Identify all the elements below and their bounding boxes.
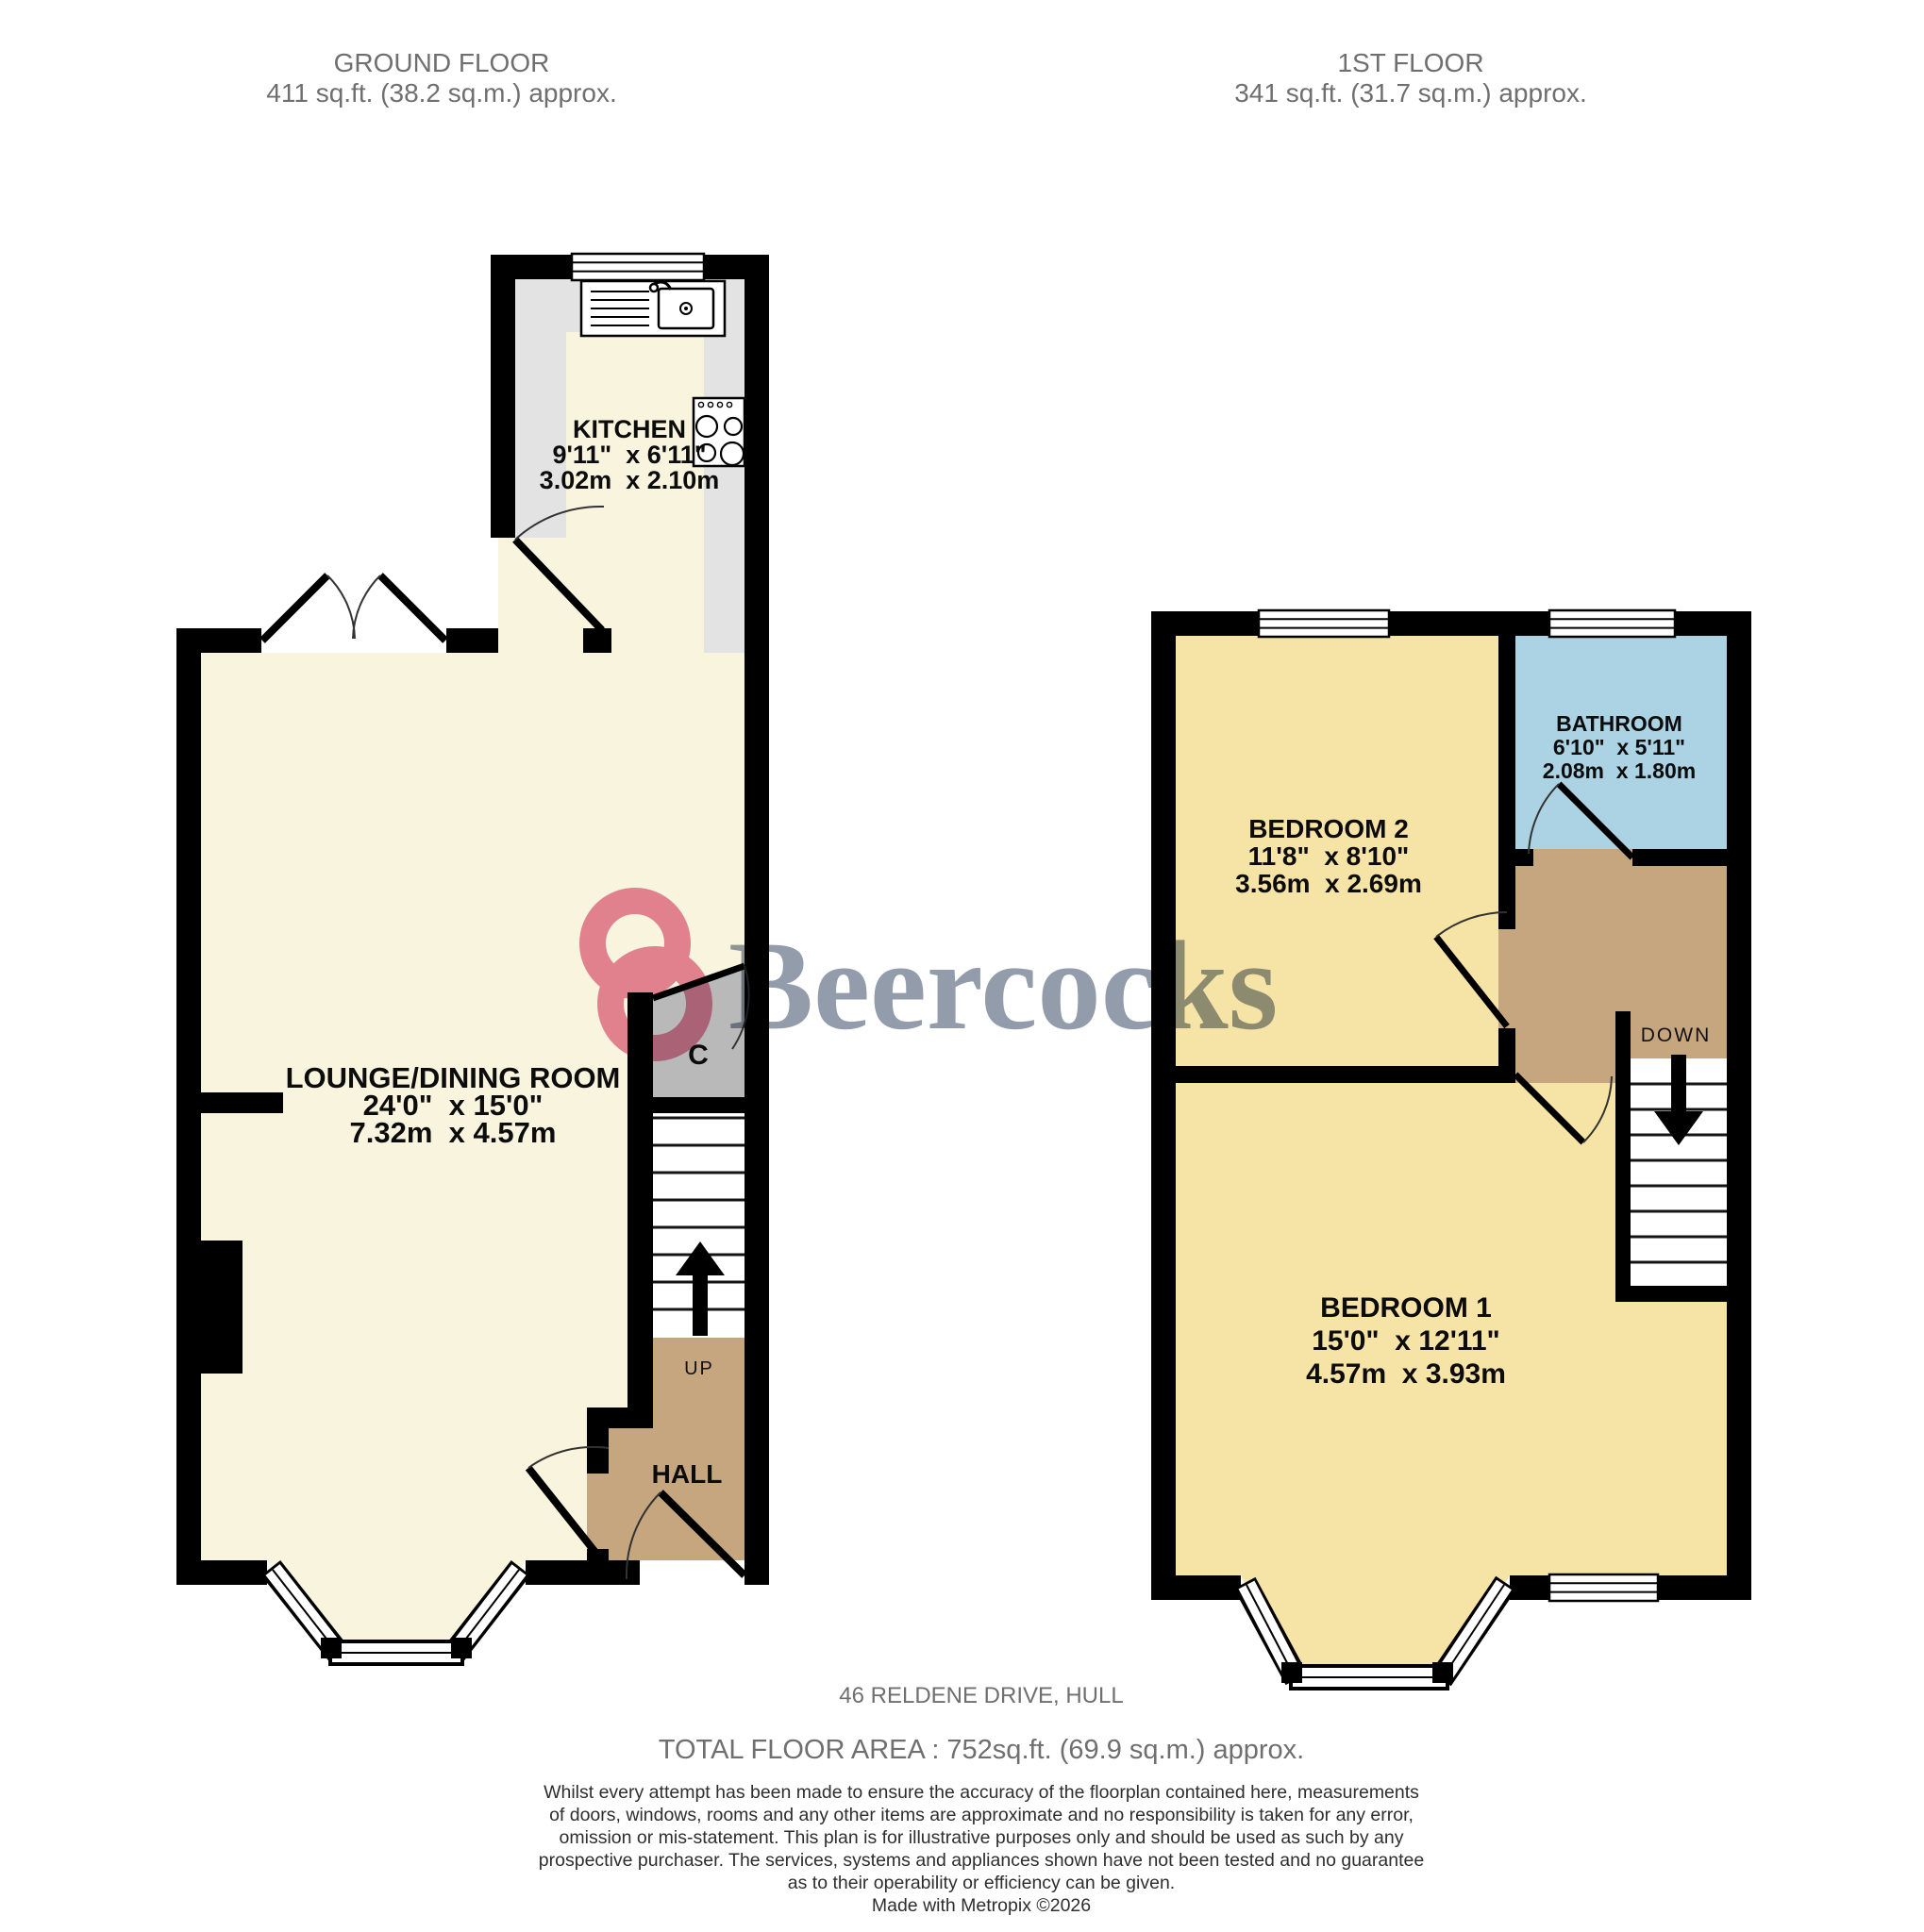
disclaimer-line: omission or mis-statement. This plan is … <box>560 1827 1404 1848</box>
bedroom1-label: BEDROOM 1 <box>1320 1292 1492 1324</box>
lounge-dims-metric: 7.32m x 4.57m <box>350 1116 557 1149</box>
bedroom2-dims-imperial: 11'8" x 8'10" <box>1248 841 1410 871</box>
kitchen-dims-metric: 3.02m x 2.10m <box>540 466 720 494</box>
wall <box>176 628 201 1585</box>
bedroom2-doorway-floor <box>1498 929 1515 1028</box>
wall <box>1727 611 1751 1600</box>
stairs-up-label: UP <box>684 1358 714 1379</box>
bedroom1-dims-metric: 4.57m x 3.93m <box>1306 1358 1506 1390</box>
wall <box>583 628 611 653</box>
kitchen-doorway-floor <box>498 628 583 653</box>
kitchen-label: KITCHEN <box>573 415 686 443</box>
french-doors <box>262 575 445 641</box>
address: 46 RELDENE DRIVE, HULL <box>839 1683 1123 1708</box>
wall-stub <box>201 1092 283 1113</box>
footer: 46 RELDENE DRIVE, HULL TOTAL FLOOR AREA … <box>539 1683 1424 1916</box>
watermark-brand: Beercocks <box>728 916 1278 1057</box>
ground-floor-title: GROUND FLOOR <box>334 48 550 77</box>
bathroom-label: BATHROOM <box>1556 711 1682 736</box>
window <box>1549 1574 1658 1601</box>
window <box>1259 610 1389 637</box>
kitchen-dims-imperial: 9'11" x 6'11" <box>552 441 706 469</box>
metropix-credit: Made with Metropix ©2026 <box>872 1895 1091 1916</box>
first-floor-area: 341 sq.ft. (31.7 sq.m.) approx. <box>1234 78 1587 108</box>
chimney-breast <box>201 1241 243 1374</box>
wall <box>491 255 515 538</box>
disclaimer-line: prospective purchaser. The services, sys… <box>539 1850 1424 1871</box>
ground-floor-area: 411 sq.ft. (38.2 sq.m.) approx. <box>266 78 616 108</box>
window <box>572 254 704 280</box>
wall <box>1151 611 1176 1600</box>
up-arrow-icon <box>693 1275 708 1336</box>
sink-icon <box>581 281 725 336</box>
bedroom1-doorway-floor <box>1515 1066 1615 1083</box>
bathroom-dims-imperial: 6'10" x 5'11" <box>1553 735 1685 759</box>
first-floor-title: 1ST FLOOR <box>1337 48 1483 77</box>
wall <box>1151 1066 1515 1083</box>
stairs-down-label: DOWN <box>1641 1024 1712 1046</box>
wall <box>446 628 498 653</box>
wall <box>1615 1011 1631 1302</box>
first-floor-header: 1ST FLOOR 341 sq.ft. (31.7 sq.m.) approx… <box>1234 48 1587 108</box>
wall <box>627 1097 745 1113</box>
wall <box>1498 611 1515 929</box>
wall <box>176 628 261 653</box>
bedroom2-label: BEDROOM 2 <box>1248 814 1409 843</box>
bathroom-doorway-floor <box>1533 849 1632 866</box>
total-floor-area: TOTAL FLOOR AREA : 752sq.ft. (69.9 sq.m.… <box>659 1735 1304 1765</box>
disclaimer-line: Whilst every attempt has been made to en… <box>544 1782 1419 1803</box>
bedroom1-dims-imperial: 15'0" x 12'11" <box>1312 1325 1500 1357</box>
ground-floor-header: GROUND FLOOR 411 sq.ft. (38.2 sq.m.) app… <box>266 48 616 108</box>
bathroom-dims-metric: 2.08m x 1.80m <box>1543 758 1696 783</box>
wall <box>1632 849 1751 866</box>
floorplan-page: GROUND FLOOR 411 sq.ft. (38.2 sq.m.) app… <box>0 0 1924 1932</box>
wall <box>587 1407 609 1474</box>
first-floor-plan: BEDROOM 2 11'8" x 8'10" 3.56m x 2.69m BA… <box>1151 610 1751 1690</box>
hall-label: HALL <box>652 1459 723 1489</box>
disclaimer-line: as to their operability or efficiency ca… <box>788 1873 1175 1893</box>
wall <box>1615 1286 1751 1302</box>
down-arrow-icon <box>1671 1055 1686 1113</box>
wall <box>176 1560 267 1585</box>
hall-doorway-floor <box>587 1474 609 1549</box>
wall <box>526 1560 640 1585</box>
window <box>1549 610 1675 637</box>
bedroom2-dims-metric: 3.56m x 2.69m <box>1235 869 1422 898</box>
disclaimer-line: of doors, windows, rooms and any other i… <box>549 1805 1414 1825</box>
wall <box>1151 1575 1241 1600</box>
